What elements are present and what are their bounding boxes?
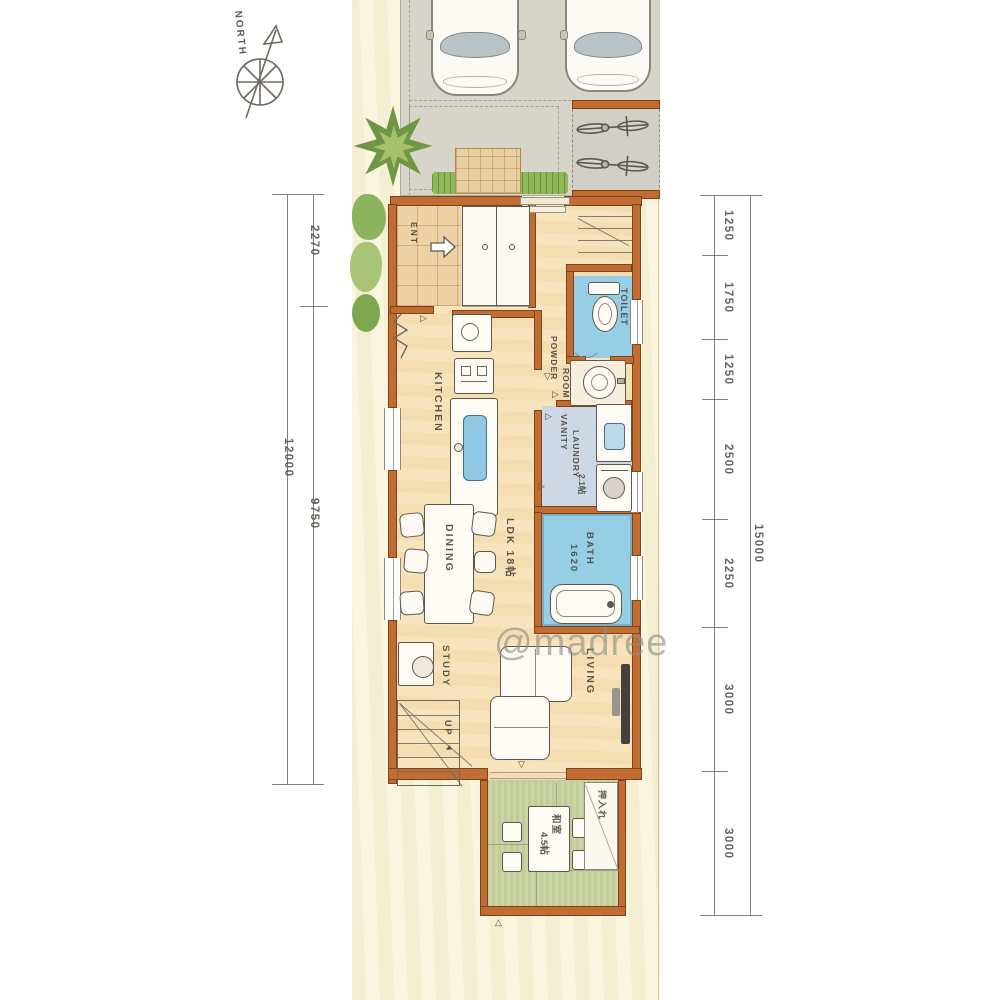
closet-door-knob [509, 244, 515, 250]
watermark: @madree [494, 622, 668, 665]
house-wall-top-left [390, 196, 522, 206]
dimension-label-seg: 1250 [721, 354, 734, 386]
dining-chair [403, 548, 429, 574]
dining-chair [468, 589, 495, 616]
tatami-label-line2: 4.5帖 [537, 832, 550, 855]
hedge [352, 294, 380, 332]
dimension-label-12000: 12000 [281, 438, 294, 477]
dimension-tick [702, 339, 728, 340]
entry-label: ENT [407, 222, 420, 245]
dimension-tick [272, 194, 324, 195]
bath-size-label: 1620 [567, 544, 580, 573]
threshold-line [490, 778, 566, 779]
door-swing-marker: ▷ [420, 314, 427, 323]
tatami-wall-right [618, 780, 626, 916]
compass-icon [212, 4, 312, 124]
hedge [352, 194, 386, 240]
kitchen-sink [463, 415, 487, 481]
tatami-label-line1: 和室 [549, 814, 562, 835]
shelf-line [578, 240, 632, 241]
car-mirror [426, 30, 434, 40]
door-arc [570, 326, 602, 358]
dining-chair [399, 590, 425, 616]
bathtub-drain [607, 601, 614, 608]
floor-cushion [502, 822, 522, 842]
folding-door-icon [392, 314, 410, 360]
kitchen-counter [450, 398, 498, 516]
house-wall-right [632, 512, 641, 556]
bicycle-icon [573, 111, 659, 198]
wall-wet-left [534, 410, 542, 512]
threshold-line [490, 772, 566, 773]
dining-chair [474, 551, 496, 573]
door-swing-marker: ▷ [545, 412, 552, 421]
dimension-tick [300, 306, 328, 307]
dimension-tick [702, 399, 728, 400]
refrigerator [452, 314, 492, 352]
dimension-tick [702, 255, 728, 256]
floor-cushion [502, 852, 522, 872]
entry-arrow-icon [430, 236, 457, 259]
dimension-label-9750: 9750 [307, 498, 320, 530]
wall-toilet-top [566, 264, 632, 272]
door-swing-marker: ▽ [518, 760, 525, 769]
dimension-line-left-inner [313, 195, 314, 785]
shoe-closet [462, 206, 530, 306]
toilet-tank [588, 282, 620, 295]
study-label: STUDY [439, 645, 452, 687]
powder-room-label-line2: ROOM [559, 368, 572, 398]
threshold-line [462, 306, 530, 307]
tatami-wall-left [480, 780, 488, 916]
car [565, 0, 651, 92]
car-windshield [440, 32, 510, 58]
wall-wet-left [534, 310, 542, 370]
bathtub [550, 584, 622, 624]
dimension-tick [702, 771, 728, 772]
dining-label: DINING [442, 524, 455, 573]
tv-stand [612, 688, 620, 716]
washer-drum [603, 477, 625, 499]
door-swing-marker: ▷ [538, 482, 545, 491]
car-mirror [560, 30, 568, 40]
door-swing-marker: ▽ [544, 372, 551, 381]
shelf-line [578, 252, 632, 253]
window [384, 408, 401, 470]
kitchen-label: KITCHEN [431, 372, 444, 433]
dimension-label-15000: 15000 [751, 524, 764, 563]
tatami-wall-bottom [480, 906, 626, 916]
closet-door-knob [482, 244, 488, 250]
dimension-label-seg: 2500 [721, 444, 734, 476]
cooktop [454, 358, 494, 394]
up-label: UP [441, 720, 454, 737]
study-chair [412, 656, 434, 678]
house-wall-bottom-right [566, 768, 642, 780]
sofa-chaise [490, 696, 550, 760]
vanity-counter [596, 404, 632, 462]
car-windshield [574, 32, 642, 58]
house-wall-top-right [564, 196, 642, 206]
dimension-label-2270: 2270 [307, 225, 320, 257]
vanity-label-line2: LAUNDRY [569, 430, 582, 478]
window [630, 556, 643, 600]
dimension-tick [702, 627, 728, 628]
toilet-fixture [592, 296, 618, 332]
dining-chair [399, 512, 425, 538]
shelf-line [578, 228, 632, 229]
bath-label: BATH [583, 532, 596, 566]
bicycle-parking [572, 104, 660, 198]
approach-tiles [455, 148, 521, 194]
window [630, 300, 643, 344]
dimension-tick [700, 195, 762, 196]
toilet-label: TOILET [617, 288, 630, 326]
window [384, 558, 401, 620]
dimension-line-left-outer [287, 195, 288, 785]
car [431, 0, 519, 96]
wall-entry-kitchen [390, 306, 434, 314]
closet-label: 押入れ [595, 790, 608, 820]
faucet [617, 378, 625, 384]
dining-chair [471, 511, 498, 538]
car-hood-line [443, 76, 507, 88]
closet-door-divider [496, 207, 497, 305]
shelf-line [578, 216, 632, 217]
door-swing-marker: △ [495, 918, 502, 927]
house-wall-right [632, 204, 641, 300]
vanity-sink [604, 423, 625, 450]
dimension-label-seg: 1250 [721, 210, 734, 242]
house-wall-left [388, 620, 397, 784]
dimension-tick [702, 519, 728, 520]
tv [621, 664, 630, 744]
vanity-label-line3: 2.1帖 [575, 474, 588, 494]
dimension-label-seg: 2250 [721, 558, 734, 590]
car-hood-line [577, 74, 639, 86]
dimension-line-right-inner [714, 196, 715, 916]
faucet [454, 443, 463, 452]
car-mirror [518, 30, 526, 40]
dimension-label-seg: 3000 [721, 684, 734, 716]
dimension-tick [700, 915, 762, 916]
wall-bath-left [534, 512, 542, 634]
ldk-label: LDK 18帖 [503, 518, 516, 579]
dimension-label-seg: 3000 [721, 828, 734, 860]
floor-plan-canvas: ENT TOILET POWDER ROOM ▷ ▽ KIT [0, 0, 1000, 1000]
dimension-tick [272, 784, 324, 785]
powder-counter [570, 360, 626, 406]
bicycle-area-beam [572, 100, 660, 109]
house-wall-left [388, 470, 397, 558]
dimension-label-seg: 1750 [721, 282, 734, 314]
door-swing-marker: ▷ [552, 390, 559, 399]
washing-machine [596, 464, 632, 512]
